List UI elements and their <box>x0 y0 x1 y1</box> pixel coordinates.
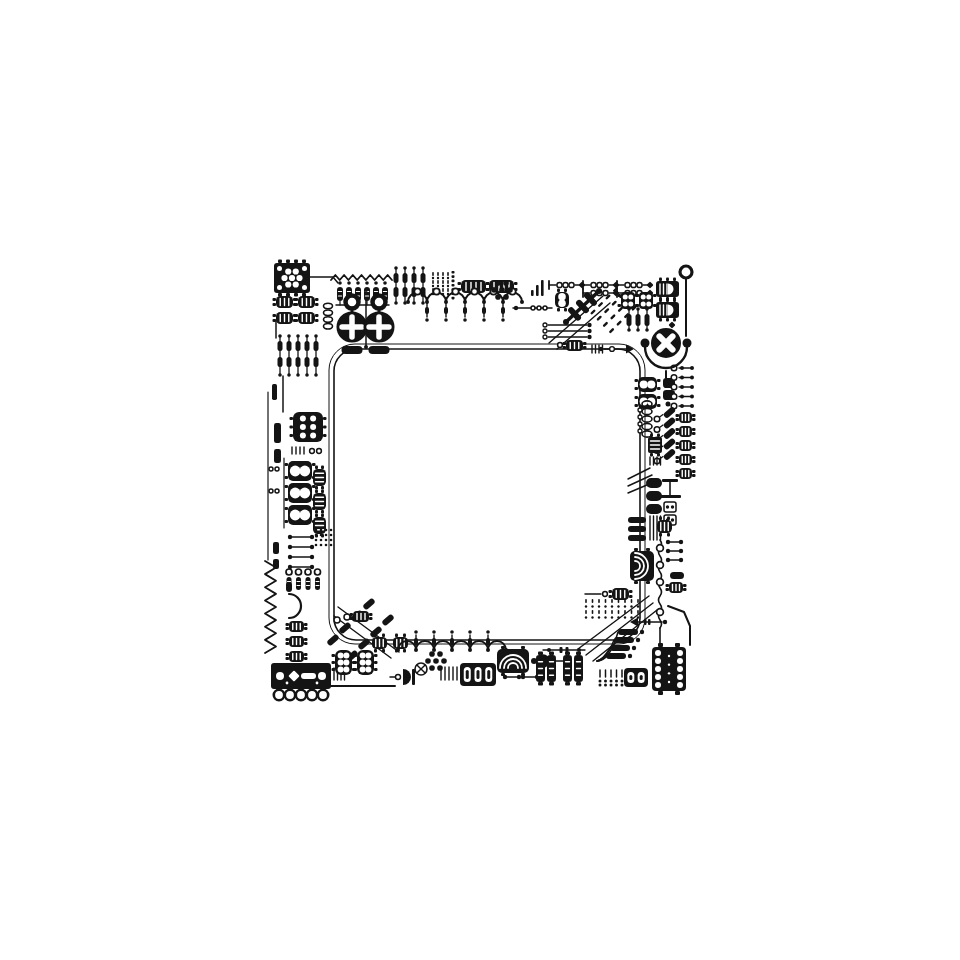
striped-capacitor <box>666 582 687 593</box>
inner-boundary-trace <box>329 344 645 644</box>
resistor-ring-chain <box>549 281 654 289</box>
stub-trace <box>543 335 592 339</box>
page-background <box>0 0 960 960</box>
striped-capacitor <box>676 440 696 451</box>
fan-resistors <box>597 629 644 661</box>
via <box>310 449 315 454</box>
inner-boundary-trace <box>334 349 640 640</box>
via <box>537 306 541 310</box>
pad-box <box>664 502 676 512</box>
smd-resistor <box>628 526 646 532</box>
dual-can-component <box>555 289 569 312</box>
pin-comb <box>292 447 304 454</box>
slot-component <box>624 668 648 687</box>
via <box>275 467 279 471</box>
ic-chip-6pin <box>290 412 327 442</box>
opamp-chip <box>656 299 679 322</box>
striped-capacitor <box>574 652 583 686</box>
striped-capacitor <box>286 621 308 632</box>
striped-capacitor <box>676 412 696 423</box>
smd-capacitor <box>274 423 281 443</box>
diamond-pad <box>668 321 675 328</box>
smd-capacitor <box>274 449 281 463</box>
jumper-links <box>288 535 314 569</box>
via <box>269 489 273 493</box>
dot-cluster <box>425 651 447 670</box>
dual-can-component <box>635 377 661 392</box>
wavy-vertical-trace <box>657 540 664 628</box>
solder-dot <box>666 402 671 407</box>
solder-dot <box>364 291 368 295</box>
diode <box>390 669 415 685</box>
ic-chip-flower <box>274 260 310 297</box>
x-valve-component <box>641 328 692 368</box>
via <box>317 449 322 454</box>
dip-ic-chip <box>652 643 686 695</box>
ring-jumpers <box>671 365 694 409</box>
striped-capacitor <box>313 514 326 538</box>
smd-resistor <box>646 478 662 488</box>
striped-capacitor <box>676 468 696 479</box>
smd-capacitor <box>273 542 279 554</box>
solder-dot <box>514 306 518 310</box>
smd-resistor <box>670 572 684 579</box>
striped-capacitor <box>295 296 319 308</box>
pin-comb <box>441 667 457 680</box>
speaker-component <box>630 548 654 584</box>
zigzag-trace <box>265 561 276 653</box>
striped-capacitor <box>286 651 308 662</box>
striped-capacitor <box>536 652 545 686</box>
edge-connector <box>271 663 331 700</box>
inductor-coil <box>642 401 652 437</box>
resistor-array <box>278 334 319 377</box>
jumper-link <box>503 675 521 679</box>
stub-trace <box>543 329 592 333</box>
dual-can-component <box>285 505 316 525</box>
zigzag-trace <box>331 275 392 280</box>
via <box>269 467 273 471</box>
ic-chip-4pin <box>618 292 639 309</box>
via-pin <box>680 266 692 278</box>
resistor-array <box>627 307 650 332</box>
via <box>558 343 563 348</box>
speaker-component <box>497 646 529 676</box>
x-via <box>415 663 427 675</box>
dual-can-component <box>285 461 316 481</box>
via <box>603 592 608 597</box>
jumper-links <box>666 540 683 562</box>
striped-capacitor <box>273 296 297 308</box>
circuit-board-frame-illustration <box>0 0 960 960</box>
striped-capacitor <box>313 490 326 514</box>
via <box>275 489 279 493</box>
striped-capacitor <box>676 426 696 437</box>
dual-can-component <box>285 483 316 503</box>
opamp-chip <box>656 278 679 301</box>
striped-capacitor <box>676 454 696 465</box>
via <box>334 617 340 623</box>
pad-comb <box>599 670 624 687</box>
striped-capacitor <box>609 588 633 600</box>
striped-capacitor <box>286 636 308 647</box>
solder-dot <box>364 345 368 349</box>
striped-capacitor <box>547 652 556 686</box>
wavy-trace <box>396 630 508 652</box>
via <box>531 306 535 310</box>
smd-resistor <box>628 535 646 541</box>
striped-capacitor <box>563 652 572 686</box>
inductor-coil <box>324 303 333 329</box>
slot-component <box>460 663 496 686</box>
smd-capacitor <box>272 384 277 400</box>
signal-bars <box>531 280 544 296</box>
striped-capacitor <box>295 312 319 324</box>
smd-resistor <box>646 504 662 514</box>
via <box>344 614 350 620</box>
smd-resistor <box>628 517 646 523</box>
ground-symbol <box>659 479 681 498</box>
pcb-trace <box>668 606 690 645</box>
via <box>543 306 547 310</box>
ic-chip-4pin <box>636 292 657 309</box>
